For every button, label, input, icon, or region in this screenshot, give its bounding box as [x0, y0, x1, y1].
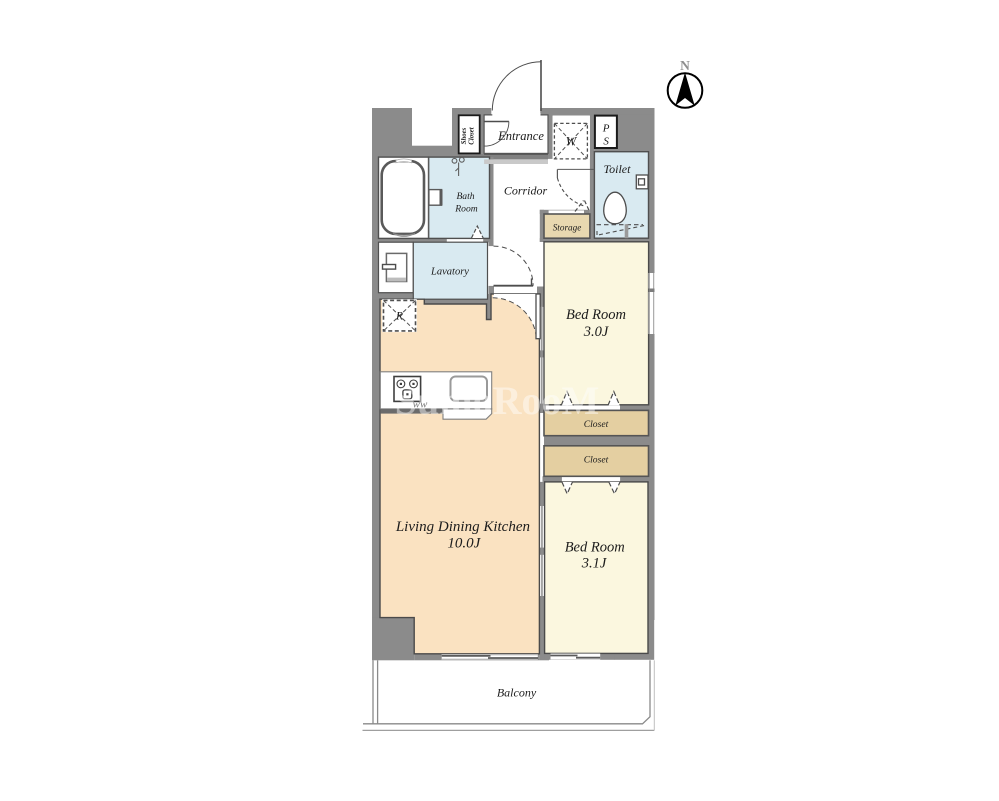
- svg-text:Balcony: Balcony: [497, 686, 537, 700]
- svg-text:P: P: [602, 123, 610, 135]
- svg-text:3.1J: 3.1J: [581, 556, 607, 572]
- svg-text:Bed Room: Bed Room: [565, 540, 625, 556]
- svg-text:Closet: Closet: [584, 455, 609, 466]
- svg-text:Lavatory: Lavatory: [430, 267, 469, 278]
- svg-text:Bed Room: Bed Room: [566, 307, 626, 323]
- svg-text:ww: ww: [413, 399, 428, 411]
- svg-text:Entrance: Entrance: [497, 129, 544, 143]
- svg-text:Storage: Storage: [553, 223, 582, 233]
- svg-text:Room: Room: [454, 204, 477, 215]
- svg-text:S: S: [603, 136, 609, 148]
- svg-text:Living Dining Kitchen: Living Dining Kitchen: [395, 519, 530, 535]
- svg-text:Closet: Closet: [469, 126, 476, 144]
- svg-text:Corridor: Corridor: [504, 184, 548, 198]
- svg-text:Bath: Bath: [456, 191, 474, 202]
- svg-text:10.0J: 10.0J: [447, 536, 481, 552]
- svg-text:Toilet: Toilet: [604, 162, 632, 176]
- svg-text:N: N: [680, 58, 690, 73]
- svg-text:Shoes: Shoes: [461, 127, 468, 144]
- svg-text:R: R: [395, 311, 403, 323]
- svg-text:W: W: [566, 135, 578, 149]
- svg-text:3.0J: 3.0J: [583, 324, 609, 340]
